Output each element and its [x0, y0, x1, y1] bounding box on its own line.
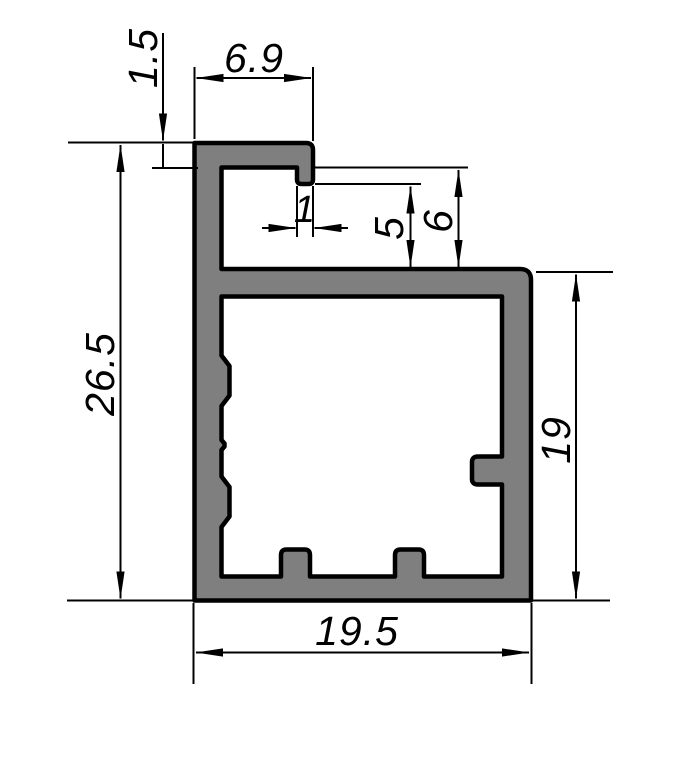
- dim-overall-width-label: 19.5: [315, 608, 399, 654]
- drawing-canvas: 6.9 1.5 26.5 1 5 6 19: [0, 0, 699, 759]
- dim-lip-depth-label: 5: [366, 216, 412, 240]
- dim-flange-thickness-label: 1.5: [120, 28, 166, 88]
- dim-overall-height-label: 26.5: [77, 332, 123, 417]
- dim-flange-width-label: 6.9: [224, 35, 284, 81]
- dim-lip-width: 1: [262, 186, 348, 237]
- dim-body-height: 19: [533, 272, 613, 599]
- dim-flange-thickness: 1.5: [68, 28, 198, 168]
- dim-channel-depth-label: 6: [415, 209, 461, 233]
- profile-cross-section: [195, 143, 532, 601]
- dim-flange-width: 6.9: [195, 35, 314, 141]
- dim-overall-width: 19.5: [194, 603, 532, 684]
- dim-lip-depth: 5: [315, 184, 421, 267]
- dim-overall-height: 26.5: [77, 145, 123, 599]
- technical-drawing: 6.9 1.5 26.5 1 5 6 19: [0, 0, 699, 759]
- dim-lip-width-label: 1: [294, 189, 316, 231]
- dim-body-height-label: 19: [533, 416, 579, 464]
